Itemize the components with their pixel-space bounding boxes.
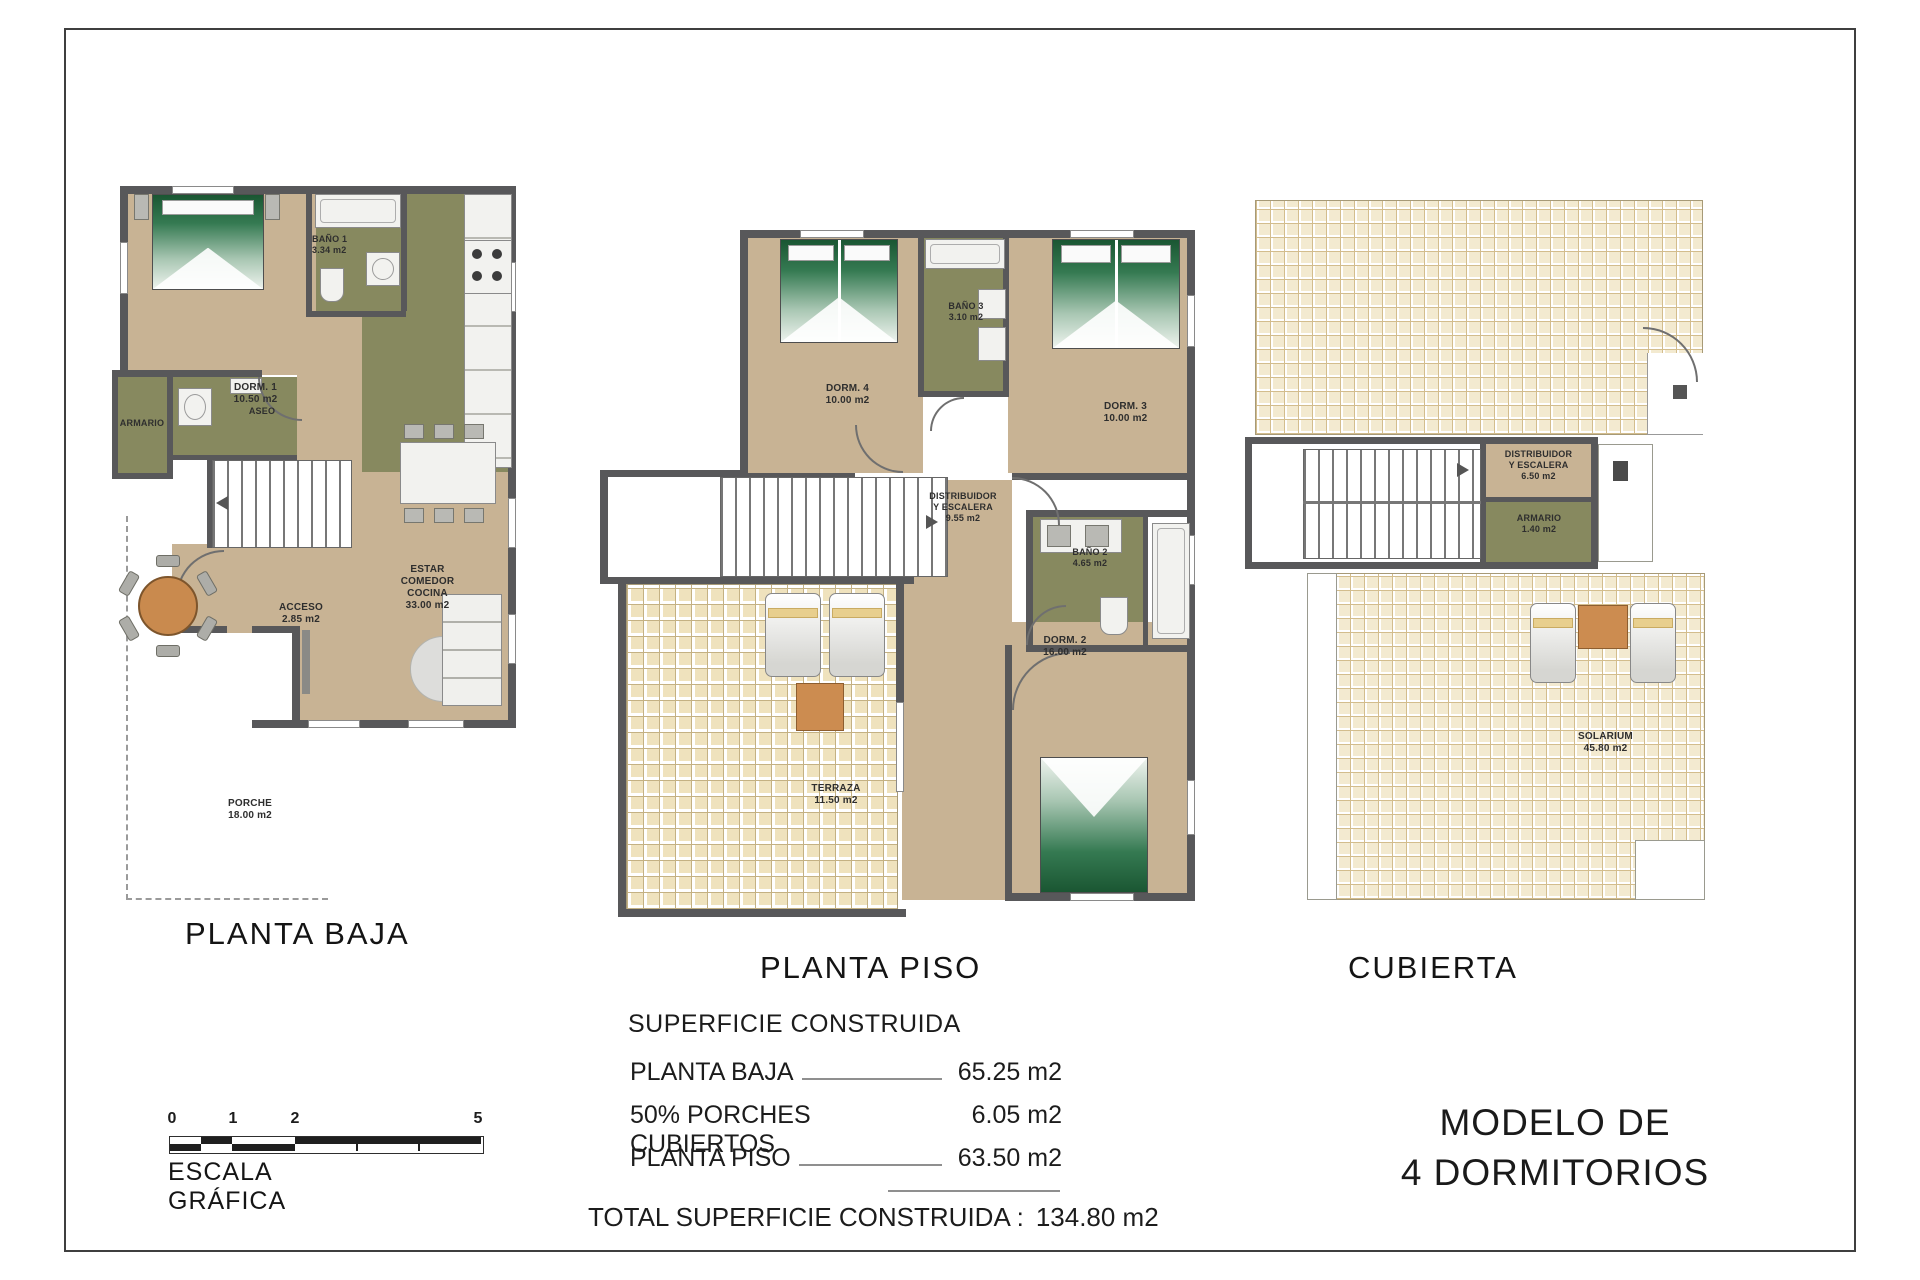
summary-row: PLANTA BAJA 65.25 m2 [630,1058,1062,1087]
bed-sheet-fold [153,248,263,289]
stairs-direction-arrow [1457,463,1469,477]
room-label: DORM. 4 10.00 m2 [800,383,895,407]
toilet [320,268,344,302]
pillow [844,245,890,261]
chair [434,508,454,523]
scale-label: ESCALA GRÁFICA [168,1158,286,1216]
wall [1143,517,1148,645]
chair [404,424,424,439]
wall [740,230,748,477]
sink-basin [372,258,394,280]
scale-segment [201,1137,232,1144]
summary-row-label: PLANTA PISO [630,1144,791,1173]
side-table [796,683,844,731]
burner [472,271,482,281]
dining-table [400,442,496,504]
bathtub [1152,523,1190,639]
chair [118,570,140,597]
bed [1040,757,1148,893]
chair [464,424,484,439]
summary-row-label: PLANTA BAJA [630,1058,794,1087]
wall [112,473,172,479]
door-arc [1012,477,1060,525]
wall [112,370,262,377]
model-title: MODELO DE 4 DORMITORIOS [1355,1098,1755,1198]
chimney [1673,385,1687,399]
scale-bar [169,1136,484,1154]
window [508,498,516,548]
wall [1245,437,1598,444]
stairs-direction-arrow [216,496,228,510]
summary-row-value: 6.05 m2 [957,1101,1062,1130]
plan-title-planta-piso: PLANTA PISO [760,950,981,986]
washer [178,388,212,426]
burner [492,249,502,259]
bed-split [1115,240,1118,348]
chair [464,508,484,523]
lounger-cushion [1533,618,1573,628]
chair [434,424,454,439]
double-bed [1052,239,1180,349]
bathtub-rim [1157,528,1185,634]
window [800,230,864,238]
lounger [765,593,821,677]
burner [472,249,482,259]
plan-title-planta-baja: PLANTA BAJA [185,916,410,952]
sink-basin [1085,525,1109,547]
planta-baja-floorplan: DORM. 1 10.50 m2 BAÑO 1 3.34 m2 ARMARIO … [112,178,540,930]
lounger [1530,603,1576,683]
planta-piso-floorplan: DORM. 4 10.00 m2 BAÑO 3 3.10 m2 DORM. 3 … [600,225,1200,930]
lounger [829,593,885,677]
floorplan-sheet: DORM. 1 10.50 m2 BAÑO 1 3.34 m2 ARMARIO … [0,0,1920,1280]
scale-segment [356,1144,358,1151]
side-table [1578,605,1628,649]
wall [401,192,407,311]
roof-tile-area [1255,200,1703,435]
bathtub-rim [320,199,396,223]
scale-tick: 1 [229,1110,238,1128]
room-label: DISTRIBUIDOR Y ESCALERA 6.50 m2 [1487,449,1590,481]
wall [1591,437,1598,569]
wall [1245,562,1598,569]
model-title-line1: MODELO DE [1355,1098,1755,1148]
bidet [978,327,1006,361]
room-label: BAÑO 3 3.10 m2 [926,301,1006,323]
room-label: PORCHE 18.00 m2 [200,798,300,822]
summary-row-value: 65.25 m2 [950,1058,1062,1087]
room-label: ESTAR COMEDOR COCINA 33.00 m2 [380,564,475,612]
sink-basin [1047,525,1071,547]
room-label: DORM. 3 10.00 m2 [1078,401,1173,425]
sliding-door [896,702,904,792]
window [408,720,464,728]
room-label: ASEO [232,406,292,417]
chair [156,555,180,567]
window [1070,230,1134,238]
leader-line [802,1078,943,1080]
pillow [1061,245,1111,262]
scale-tick: 0 [168,1110,177,1128]
lounger-cushion [768,608,818,618]
pillow [1121,245,1171,262]
window [1070,893,1134,901]
scale-tick: 5 [474,1110,483,1128]
model-title-line2: 4 DORMITORIOS [1355,1148,1755,1198]
wall [618,577,626,917]
stove [464,240,512,294]
chair [156,645,180,657]
leader-line [799,1164,942,1166]
summary-total-label: TOTAL SUPERFICIE CONSTRUIDA : [588,1202,1024,1233]
room-label: ACCESO 2.85 m2 [260,602,342,626]
wall [600,470,608,584]
window [1187,780,1195,835]
wall [1012,473,1187,480]
room-label: TERRAZA 11.50 m2 [786,783,886,807]
scale-segment [295,1137,481,1144]
lounger-cushion [1633,618,1673,628]
bed-sheet-fold [1041,758,1147,817]
scale-segment [170,1144,201,1151]
solarium-notch [1635,840,1705,900]
scale-segment [232,1144,295,1151]
wall [1245,437,1252,569]
burner [492,271,502,281]
wall [306,311,406,317]
summary-row-value: 63.50 m2 [950,1144,1062,1173]
bed-split [838,240,841,342]
surface-summary: SUPERFICIE CONSTRUIDA PLANTA BAJA 65.25 … [588,1002,1208,1247]
wall [600,577,914,584]
bano3-sink-counter [925,239,1005,269]
room-label: BAÑO 1 3.34 m2 [312,234,376,256]
window [1187,295,1195,347]
duct [1613,461,1628,481]
scale-segment [418,1144,420,1151]
wall [1005,645,1012,900]
porch-table-group [130,568,206,644]
scale-tick: 2 [291,1110,300,1128]
chair [118,615,140,642]
wall [600,470,748,477]
wall [618,909,906,917]
washer-door [184,394,206,420]
pillow [162,200,254,215]
wall [1486,497,1591,502]
window [120,242,128,294]
stairs-landing-divider [1303,501,1481,504]
sink [366,252,400,286]
window [172,186,234,194]
wall [896,577,904,702]
toilet [1100,597,1128,635]
sink-basin [930,244,1000,264]
lounger-cushion [832,608,882,618]
window [508,614,516,664]
pillow [788,245,834,261]
room-label: BAÑO 2 4.65 m2 [1048,547,1132,569]
nightstand [265,194,280,220]
total-divider [888,1190,1060,1192]
cubierta-floorplan: DISTRIBUIDOR Y ESCALERA 6.50 m2 ARMARIO … [1245,195,1715,930]
stairs [720,477,948,577]
porch-table [138,576,198,636]
wall [918,237,924,397]
stairs [1303,449,1481,559]
plan-title-cubierta: CUBIERTA [1348,950,1518,986]
room-label: DORM. 1 10.50 m2 [208,382,303,406]
room-label: ARMARIO [104,418,180,429]
room-label: DORM. 2 16.00 m2 [1020,635,1110,659]
summary-row: PLANTA PISO 63.50 m2 [630,1144,1062,1173]
nightstand [134,194,149,220]
solarium-side-strip [1307,573,1337,900]
room-label: DISTRIBUIDOR Y ESCALERA 9.55 m2 [917,491,1009,523]
double-bed [780,239,898,343]
chair [404,508,424,523]
room-label: ARMARIO 1.40 m2 [1490,513,1588,535]
summary-title: SUPERFICIE CONSTRUIDA [628,1010,961,1039]
lounger [1630,603,1676,683]
summary-total-value: 134.80 m2 [1036,1202,1159,1233]
summary-total: TOTAL SUPERFICIE CONSTRUIDA : 134.80 m2 [588,1202,1159,1233]
room-label: SOLARIUM 45.80 m2 [1553,731,1658,755]
bathtub [315,194,401,228]
door-arc [930,397,964,431]
bed [152,194,264,290]
